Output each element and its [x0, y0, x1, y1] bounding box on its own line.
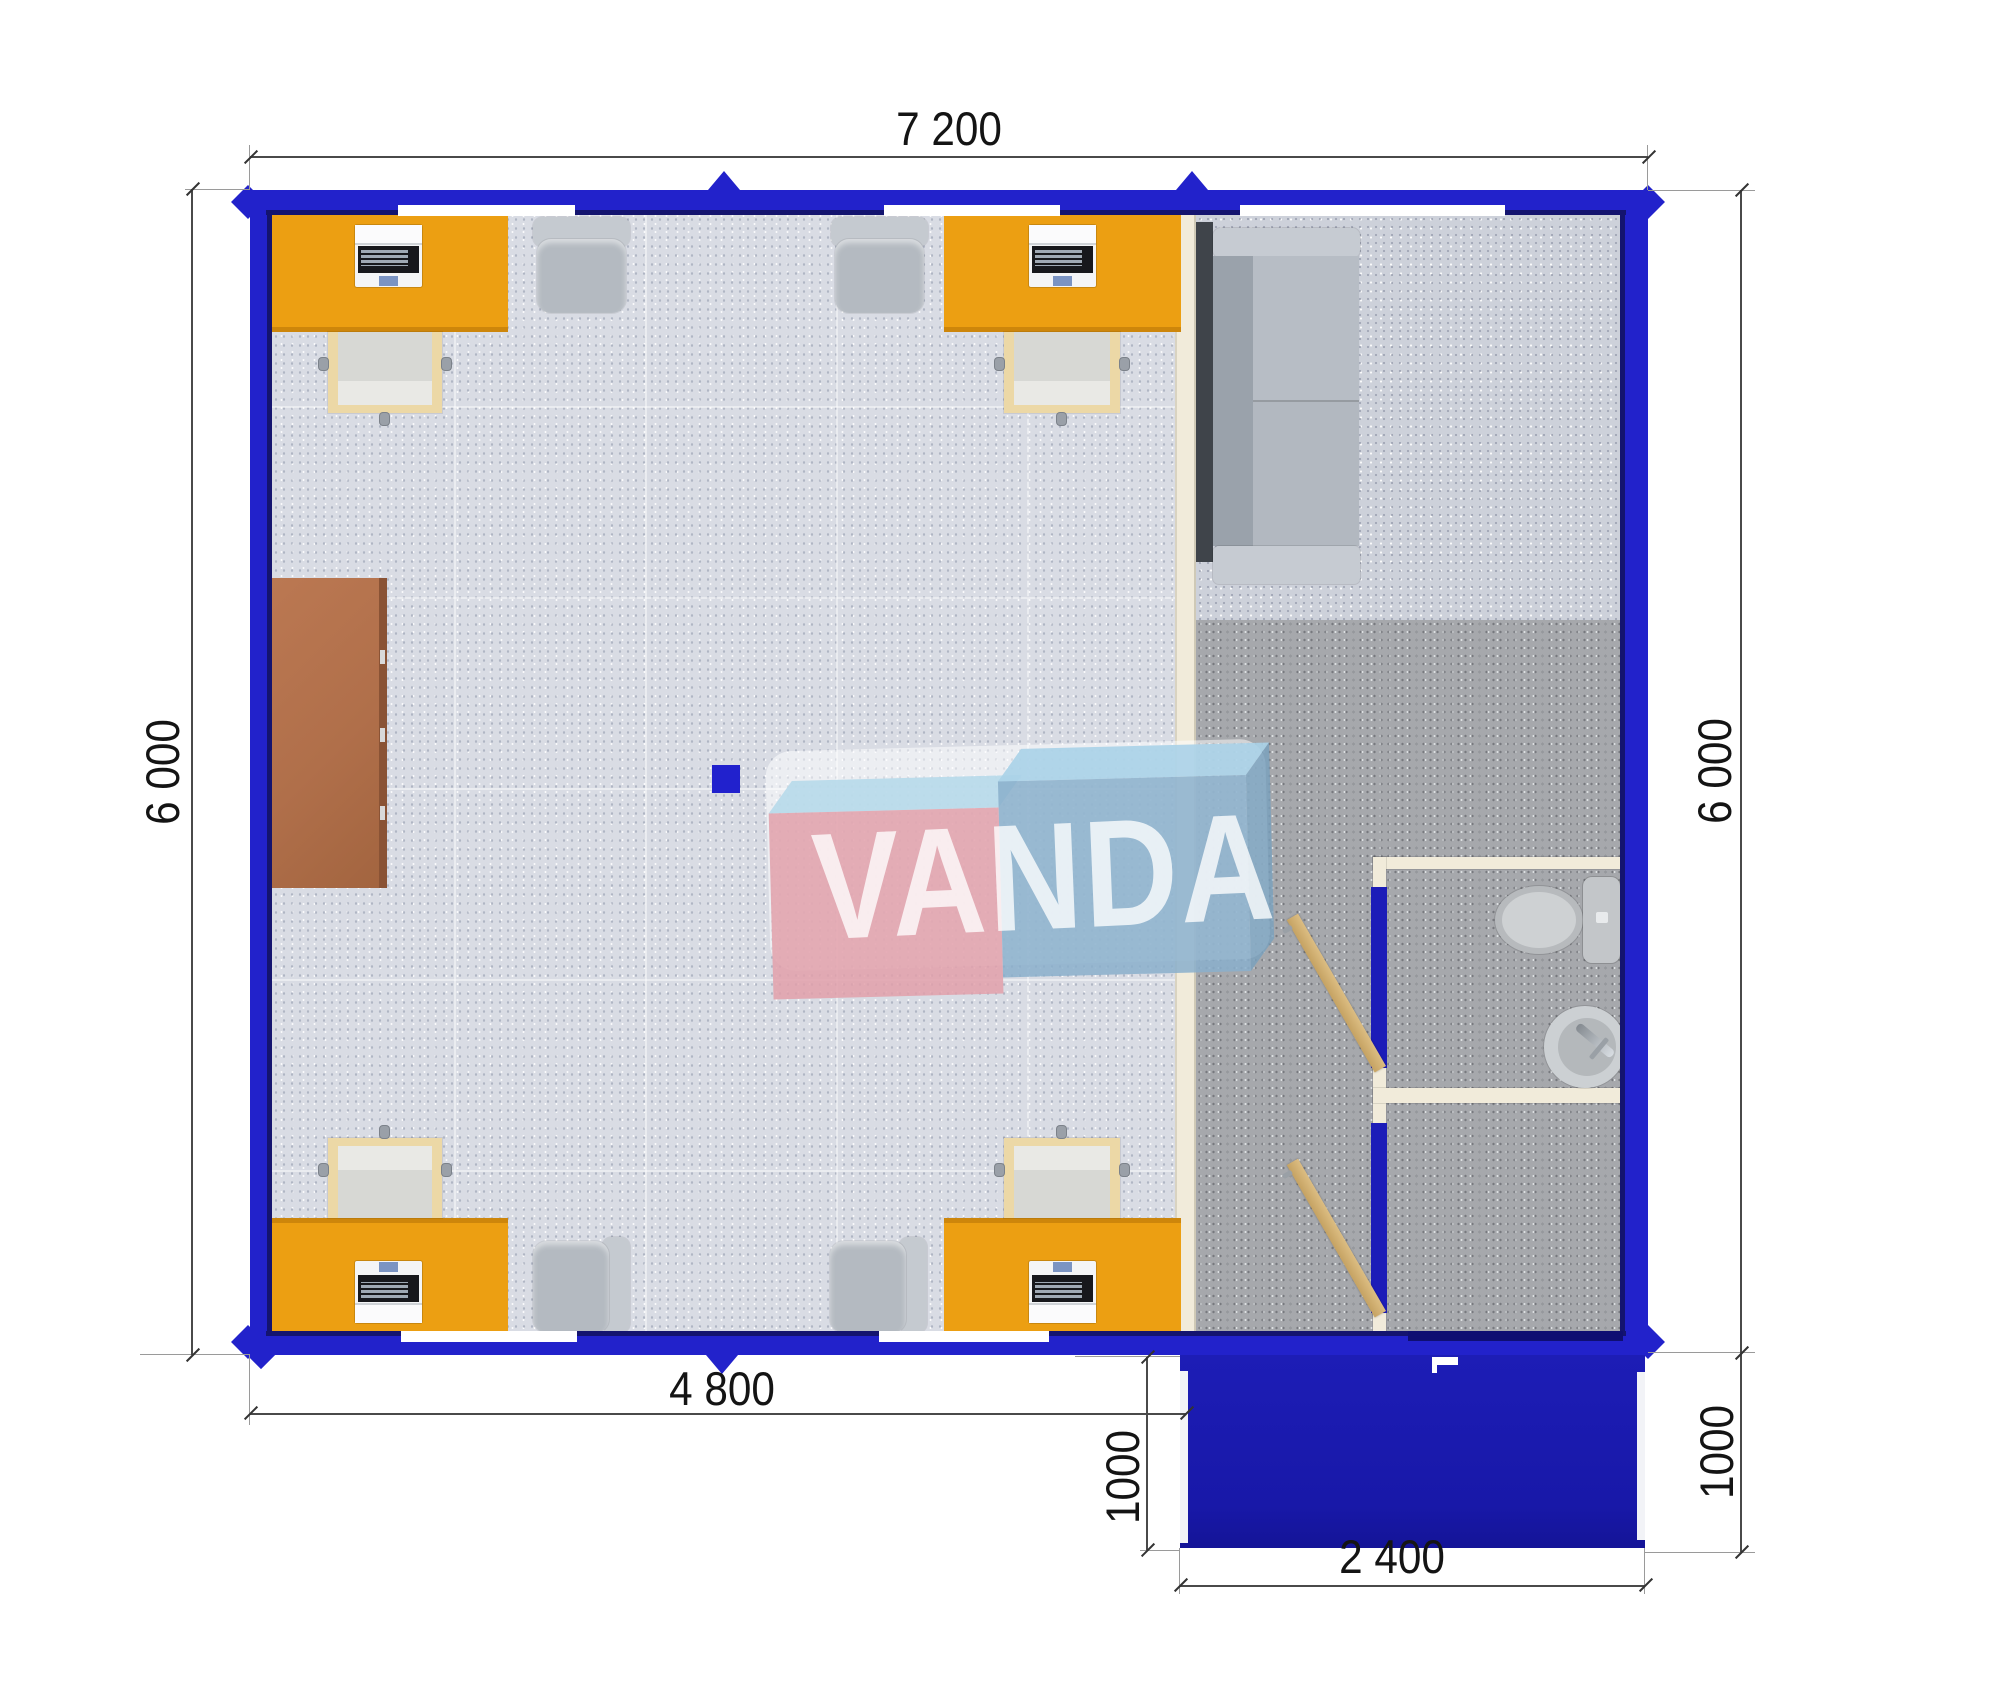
bathroom-divider-wall: [1373, 1088, 1620, 1103]
window-bottom-1: [401, 1331, 577, 1342]
hallway-bathroom-floor: [1196, 620, 1620, 1331]
porch-door-threshold-stub: [1432, 1357, 1437, 1373]
window-top-3: [1240, 205, 1505, 216]
toilet-seat: [1502, 892, 1576, 948]
dim-line-top: [250, 156, 1648, 158]
cabinet: [270, 578, 387, 888]
side-table-top-left: [328, 332, 442, 413]
dim-tick: [1735, 1346, 1749, 1360]
extension-line: [1075, 1356, 1180, 1357]
side-table-top-right: [1004, 332, 1120, 413]
laptop-bottom-right: [1029, 1261, 1096, 1323]
dim-label-1000-right: 1000: [1690, 1362, 1742, 1542]
floor-grid-line: [645, 215, 647, 1331]
sofa-base: [1213, 546, 1360, 584]
bathroom-doorway-1: [1371, 887, 1387, 1068]
dim-label-4800: 4 800: [632, 1363, 812, 1413]
dim-line-2400: [1180, 1585, 1645, 1587]
wall-lining-left: [267, 211, 272, 1335]
dim-label-top: 7 200: [859, 102, 1039, 154]
porch-right-frame: [1637, 1372, 1645, 1540]
side-table-bottom-left: [328, 1138, 442, 1218]
dim-label-1000-left: 1000: [1096, 1387, 1148, 1567]
window-top-2: [884, 205, 1060, 216]
floor-grid-line: [454, 215, 456, 1331]
floor-grid-line: [836, 215, 838, 1331]
sofa-backrest: [1213, 256, 1253, 546]
chair-top-left: [533, 217, 630, 313]
chair-top-right: [831, 217, 928, 313]
laptop-bottom-left: [355, 1261, 422, 1323]
dim-label-left: 6 000: [136, 682, 188, 862]
partition-wall: [1175, 215, 1196, 1331]
chair-bottom-left: [533, 1237, 630, 1333]
laptop-top-right: [1029, 225, 1096, 287]
extension-line: [185, 189, 250, 190]
sofa-armrest: [1213, 228, 1360, 258]
sofa-back-edge: [1196, 222, 1213, 562]
dim-label-right: 6 000: [1688, 681, 1740, 861]
laptop-top-left: [355, 225, 422, 287]
sofa-cushion: [1253, 402, 1359, 546]
extension-line: [1647, 145, 1648, 190]
floor-grid-line: [272, 597, 1175, 599]
side-table-bottom-right: [1004, 1138, 1120, 1218]
floor-plan-canvas: VANDA 7 200 6 000 6 000 4 800 1000 1000 …: [0, 0, 2000, 1682]
bathroom-doorway-2: [1371, 1123, 1387, 1313]
wall-lining-right: [1620, 211, 1625, 1335]
floor-marker-square: [712, 765, 740, 793]
dim-label-2400: 2 400: [1302, 1531, 1482, 1581]
sofa-cushion: [1253, 256, 1359, 402]
chair-bottom-right: [830, 1237, 927, 1333]
module-joint-marker: [708, 171, 740, 190]
module-joint-marker: [1176, 171, 1208, 190]
porch: [1180, 1355, 1645, 1548]
extension-line: [249, 145, 250, 190]
floor-grid-line: [272, 979, 1175, 981]
toilet-flush-button: [1596, 912, 1608, 923]
dim-tick: [186, 1348, 200, 1362]
window-bottom-2: [879, 1331, 1049, 1342]
bathroom-top-wall: [1373, 857, 1620, 869]
window-top-1: [398, 205, 575, 216]
porch-left-frame: [1180, 1371, 1188, 1543]
entrance-door-lintel: [1408, 1331, 1623, 1341]
dim-line-left: [191, 189, 193, 1355]
